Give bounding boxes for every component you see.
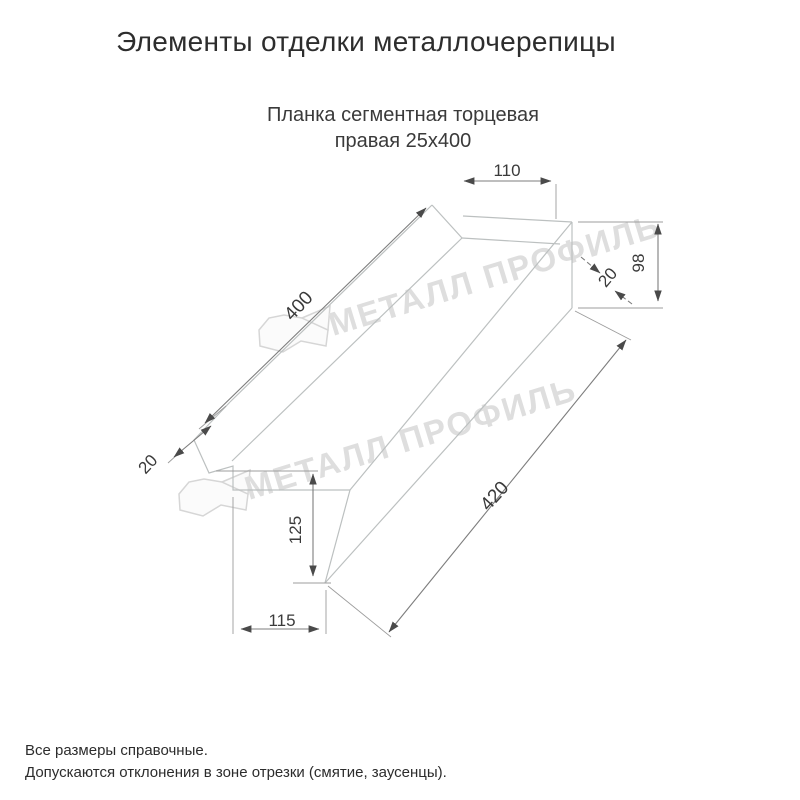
dim-label-right-hem: 20 bbox=[594, 264, 621, 291]
metal-profil-logo-icon bbox=[179, 470, 250, 516]
dim-label-top-flange-width: 110 bbox=[493, 161, 520, 180]
watermark-layer: МЕТАЛЛ ПРОФИЛЬ МЕТАЛЛ ПРОФИЛЬ bbox=[179, 206, 665, 516]
dim-label-lower-edge-length: 420 bbox=[477, 478, 514, 516]
dim-label-bottom-flange-width: 115 bbox=[268, 611, 295, 630]
dim-label-left-end-height: 125 bbox=[286, 516, 305, 544]
technical-drawing: МЕТАЛЛ ПРОФИЛЬ МЕТАЛЛ ПРОФИЛЬ bbox=[0, 0, 800, 800]
dim-label-right-end-height: 98 bbox=[629, 254, 648, 273]
dim-label-left-hem: 20 bbox=[135, 451, 162, 478]
footer-note-1: Все размеры справочные. bbox=[25, 740, 447, 762]
watermark-text-lower: МЕТАЛЛ ПРОФИЛЬ bbox=[240, 370, 581, 506]
footer-notes: Все размеры справочные. Допускаются откл… bbox=[25, 740, 447, 784]
drawing-page: Элементы отделки металлочерепицы Планка … bbox=[0, 0, 800, 800]
footer-note-2: Допускаются отклонения в зоне отрезки (с… bbox=[25, 762, 447, 784]
